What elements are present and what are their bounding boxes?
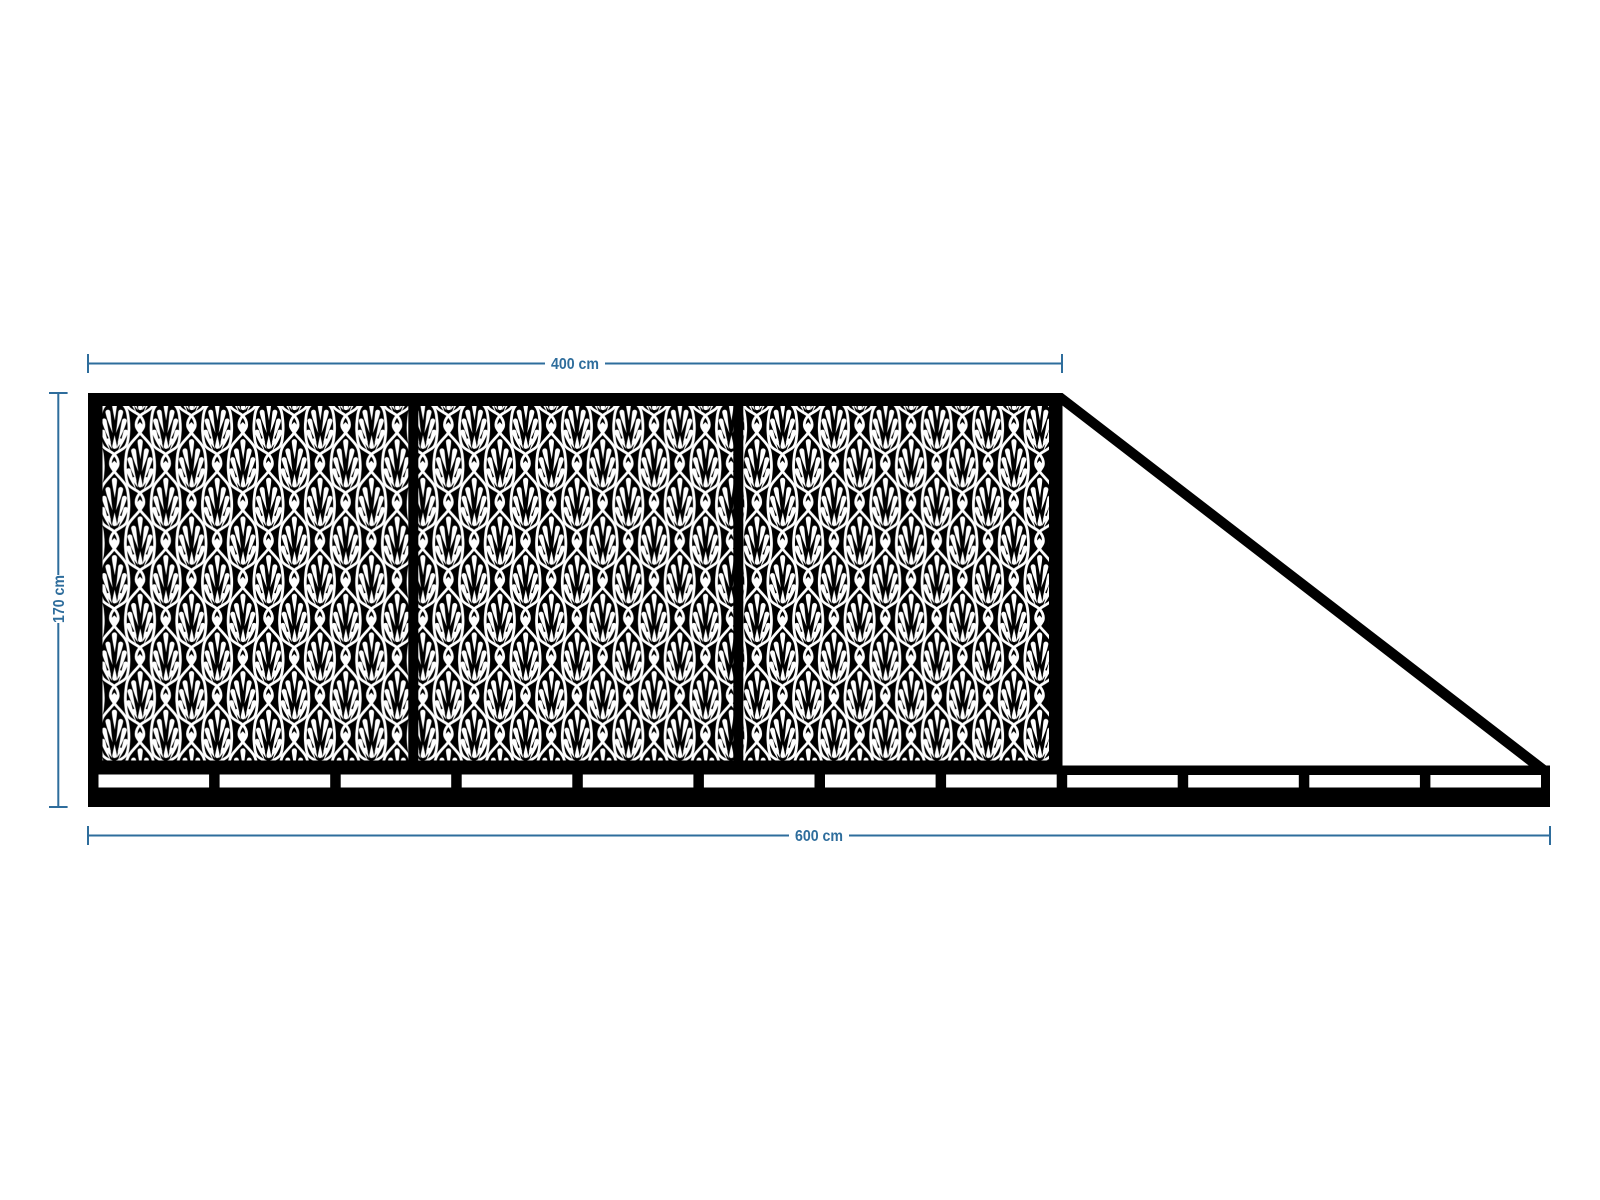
- svg-text:600 cm: 600 cm: [795, 828, 843, 845]
- svg-text:170 cm: 170 cm: [51, 575, 68, 623]
- svg-text:400 cm: 400 cm: [551, 356, 599, 373]
